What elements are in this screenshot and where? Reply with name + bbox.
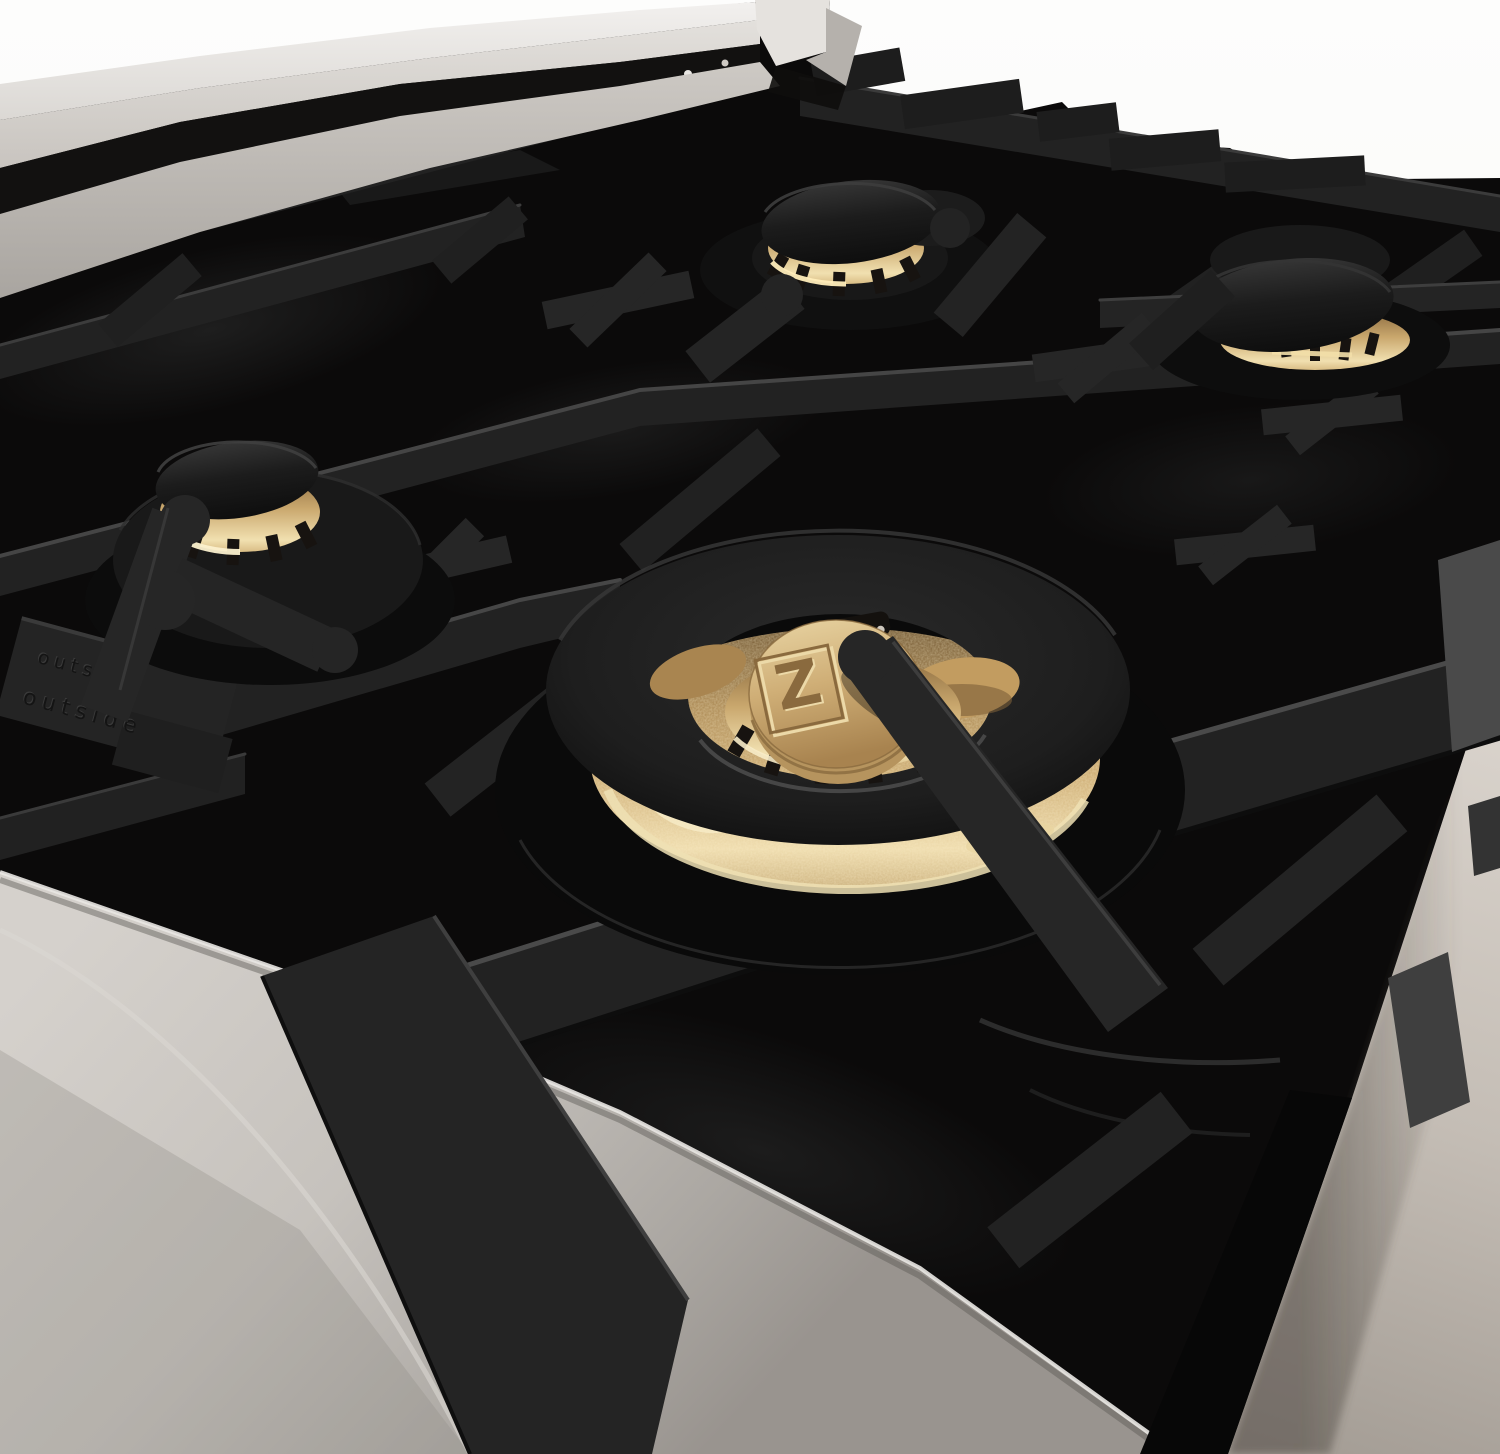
product-photo-canvas: outside outside outside outside	[0, 0, 1500, 1454]
rangetop-photo: outside outside outside outside	[0, 0, 1500, 1454]
rail-screw	[722, 60, 729, 67]
